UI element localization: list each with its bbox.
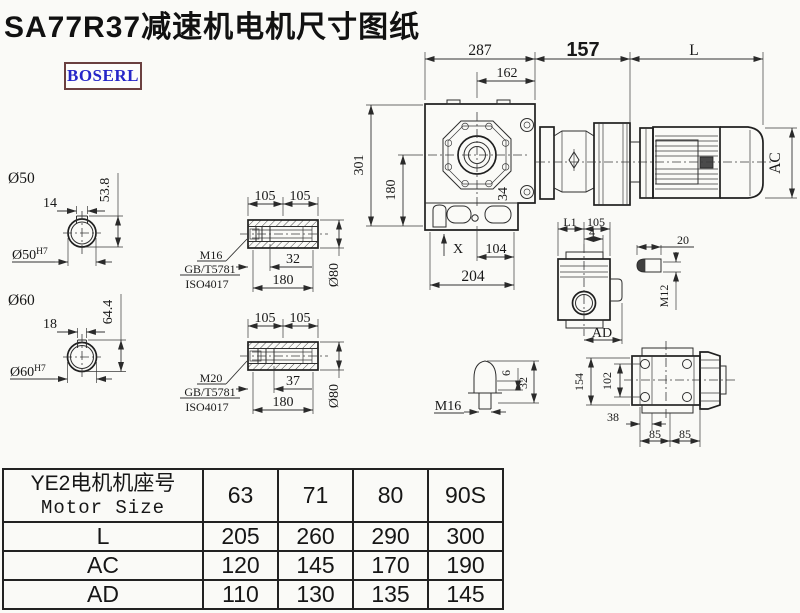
side-dim-AD: AD bbox=[592, 326, 612, 341]
key-dim-20: 20 bbox=[677, 233, 689, 247]
shaft60-depth: 64.4 bbox=[101, 300, 116, 325]
plug-dim-6: 6 bbox=[499, 370, 513, 376]
AC-80: 170 bbox=[353, 551, 428, 580]
dim-287: 287 bbox=[468, 42, 492, 59]
shaft60-label: Ø60 bbox=[8, 292, 35, 309]
dim-104: 104 bbox=[486, 242, 507, 257]
gearbox-front-view bbox=[425, 100, 535, 230]
shaft60-key-width: 18 bbox=[43, 317, 57, 332]
header-motor-size: YE2电机机座号 Motor Size bbox=[3, 469, 203, 522]
bush1-dim-105b: 105 bbox=[290, 189, 311, 204]
plug-thread-M16: M16 bbox=[435, 399, 461, 414]
header-motor-size-en: Motor Size bbox=[4, 496, 202, 520]
dim-34: 34 bbox=[496, 187, 511, 201]
L-80: 290 bbox=[353, 522, 428, 551]
column-71: 71 bbox=[278, 469, 353, 522]
column-63: 63 bbox=[203, 469, 278, 522]
side-dim-4: 4 bbox=[589, 225, 595, 239]
bush1-length: 180 bbox=[273, 273, 294, 288]
back-dim-85a: 85 bbox=[649, 427, 661, 441]
table-row-L: L 205 260 290 300 bbox=[3, 522, 503, 551]
L-63: 205 bbox=[203, 522, 278, 551]
plug-detail: 6 32 M16 bbox=[434, 361, 539, 414]
back-dim-102: 102 bbox=[600, 372, 614, 390]
motor-assembly-view bbox=[536, 123, 772, 205]
AD-63: 110 bbox=[203, 580, 278, 609]
L-71: 260 bbox=[278, 522, 353, 551]
bush2-diameter: Ø80 bbox=[327, 384, 342, 408]
side-dim-L1: L1 bbox=[563, 215, 576, 229]
row-label-AC: AC bbox=[3, 551, 203, 580]
bush1-standard-1: GB/T5781 bbox=[184, 262, 235, 276]
shaft50-label: Ø50 bbox=[8, 170, 35, 187]
bush2-standard-1: GB/T5781 bbox=[184, 385, 235, 399]
header-motor-size-cn: YE2电机机座号 bbox=[4, 471, 202, 496]
bushing-detail-1: 105 105 32 180 Ø80 M16 GB/T5781 ISO4017 bbox=[180, 189, 344, 292]
bush1-socket-depth: 32 bbox=[286, 252, 300, 267]
dim-157: 157 bbox=[566, 39, 599, 61]
bush2-dim-105a: 105 bbox=[255, 311, 276, 326]
bush2-thread: M20 bbox=[200, 371, 223, 385]
bush2-socket-depth: 37 bbox=[286, 374, 300, 389]
bush1-thread: M16 bbox=[200, 248, 223, 262]
shaft50-bore-label: Ø50H7 bbox=[12, 247, 48, 263]
bush2-dim-105b: 105 bbox=[290, 311, 311, 326]
bush1-diameter: Ø80 bbox=[327, 263, 342, 287]
AC-90S: 190 bbox=[428, 551, 503, 580]
column-90S: 90S bbox=[428, 469, 503, 522]
bush2-length: 180 bbox=[273, 395, 294, 410]
gearbox-back-view: 154 102 38 85 85 bbox=[572, 341, 738, 447]
AC-71: 145 bbox=[278, 551, 353, 580]
dim-301: 301 bbox=[352, 155, 367, 176]
hollow-shaft-60-detail: Ø60 18 64.4 Ø60H7 bbox=[8, 292, 126, 383]
dim-204: 204 bbox=[461, 268, 485, 285]
bush1-dim-105a: 105 bbox=[255, 189, 276, 204]
shaft50-key-width: 14 bbox=[43, 196, 57, 211]
dim-180: 180 bbox=[384, 180, 399, 201]
bush2-standard-2: ISO4017 bbox=[185, 400, 228, 414]
AD-71: 130 bbox=[278, 580, 353, 609]
L-90S: 300 bbox=[428, 522, 503, 551]
shaft60-bore-label: Ø60H7 bbox=[10, 364, 46, 380]
key-detail: 20 M12 bbox=[637, 233, 694, 310]
shaft50-depth: 53.8 bbox=[98, 178, 113, 203]
table-row-AC: AC 120 145 170 190 bbox=[3, 551, 503, 580]
back-dim-85b: 85 bbox=[679, 427, 691, 441]
plug-dim-32: 32 bbox=[516, 377, 530, 389]
dim-L: L bbox=[689, 42, 698, 59]
row-label-L: L bbox=[3, 522, 203, 551]
dim-AC: AC bbox=[767, 152, 784, 174]
dim-X: X bbox=[453, 242, 463, 257]
bush1-standard-2: ISO4017 bbox=[185, 277, 228, 291]
key-thread-M12: M12 bbox=[657, 285, 671, 308]
row-label-AD: AD bbox=[3, 580, 203, 609]
back-dim-38: 38 bbox=[607, 410, 619, 424]
motor-dimension-table: YE2电机机座号 Motor Size 63 71 80 90S L 205 2… bbox=[2, 468, 504, 610]
table-header-row: YE2电机机座号 Motor Size 63 71 80 90S bbox=[3, 469, 503, 522]
bushing-detail-2: 105 105 37 180 Ø80 M20 GB/T5781 ISO4017 bbox=[180, 311, 344, 414]
dim-162: 162 bbox=[497, 66, 518, 81]
back-dim-154: 154 bbox=[572, 373, 586, 391]
gearbox-side-view: L1 105 4 AD bbox=[558, 215, 622, 344]
table-row-AD: AD 110 130 135 145 bbox=[3, 580, 503, 609]
AD-90S: 145 bbox=[428, 580, 503, 609]
AC-63: 120 bbox=[203, 551, 278, 580]
AD-80: 135 bbox=[353, 580, 428, 609]
hollow-shaft-50-detail: Ø50 14 53.8 Ø50H7 bbox=[8, 170, 123, 266]
column-80: 80 bbox=[353, 469, 428, 522]
